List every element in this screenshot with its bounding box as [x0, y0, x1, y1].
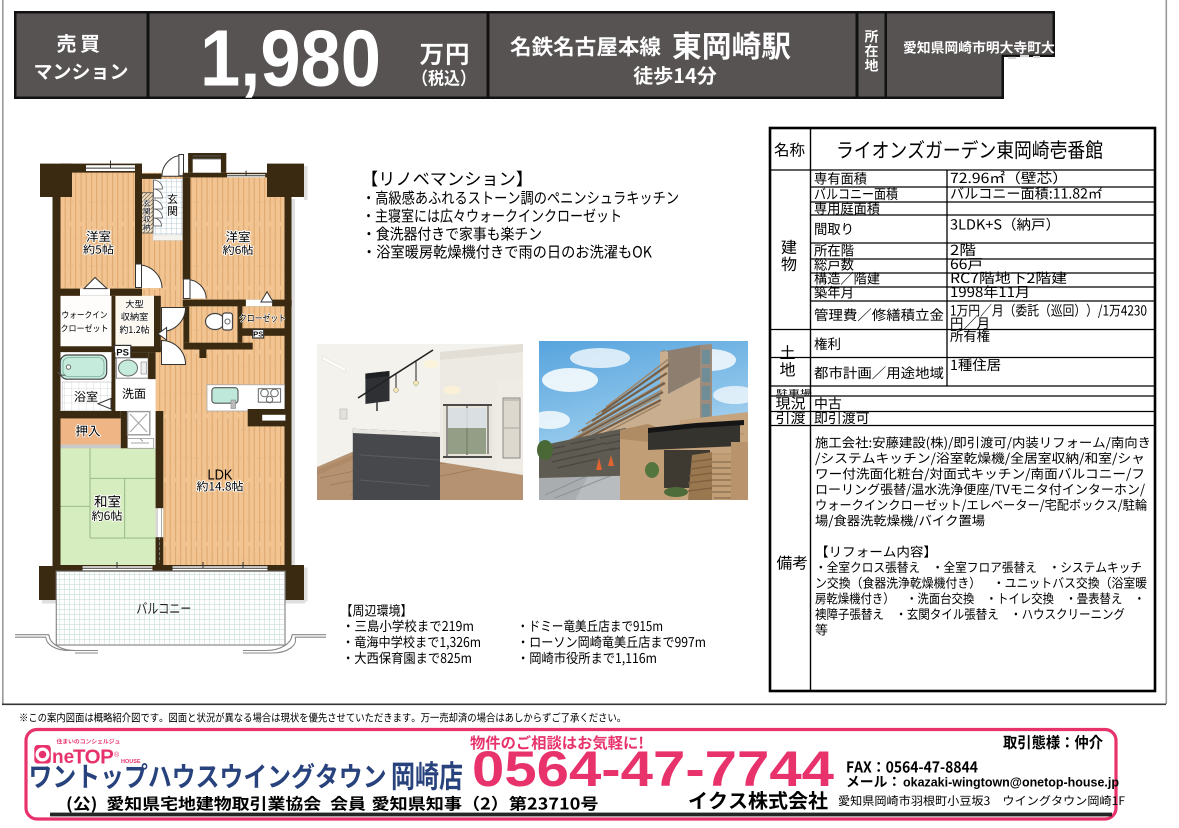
svg-text:TOP: TOP	[73, 746, 113, 769]
svg-text:1,980: 1,980	[200, 14, 381, 103]
svg-text:PS: PS	[253, 330, 263, 339]
svg-text:PS: PS	[116, 347, 129, 358]
svg-text:HOUSE: HOUSE	[121, 759, 141, 765]
svg-text:0564-47-7744: 0564-47-7744	[472, 741, 834, 797]
svg-text:®: ®	[114, 751, 120, 759]
svg-text:ne: ne	[52, 747, 74, 768]
svg-text:okazaki-wingtown@onetop-house.: okazaki-wingtown@onetop-house.jp	[903, 775, 1119, 790]
svg-text:LDK: LDK	[208, 467, 233, 484]
